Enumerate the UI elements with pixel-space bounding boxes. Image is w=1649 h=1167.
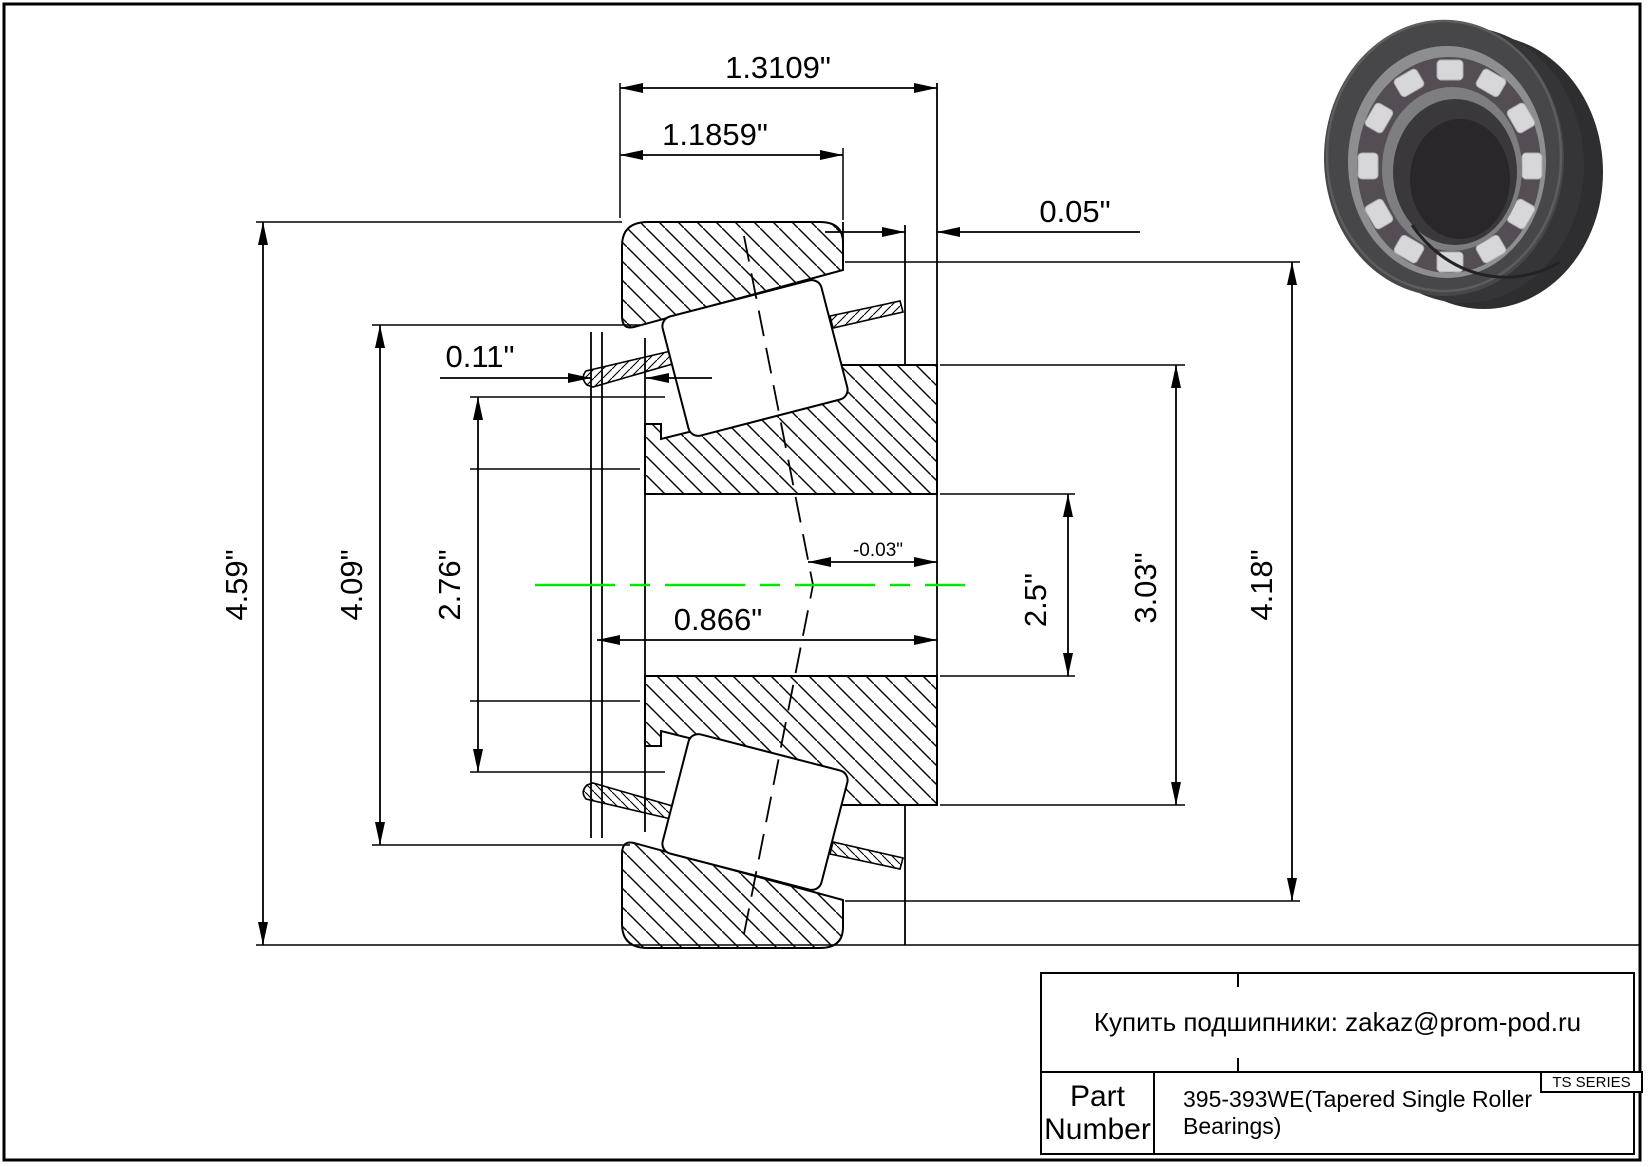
- dim-axial-offset: -0.03": [853, 540, 903, 561]
- dim-back-standout: 0.05": [1039, 194, 1110, 229]
- dim-cup-diameter: 4.18": [1244, 549, 1279, 620]
- part-number-label: Part Number: [1042, 1073, 1155, 1153]
- cage-front-bottom: [583, 783, 676, 819]
- part-label-line2: Number: [1044, 1113, 1151, 1146]
- dim-cup-width: 1.1859": [662, 117, 768, 152]
- bearing-3d-render: [1324, 20, 1603, 309]
- bearing-roller-3d: [1522, 153, 1542, 179]
- dim-bore-diameter: 2.5": [1018, 573, 1053, 627]
- title-block-tick-top: [1237, 974, 1239, 987]
- contact-line: Купить подшипники: zakaz@prom-pod.ru: [1042, 974, 1633, 1071]
- cross-section-top-half: [583, 222, 937, 585]
- bearing-roller-3d: [1358, 153, 1378, 179]
- title-block-tick-bottom: [1237, 1058, 1239, 1071]
- dim-front-standout: 0.11": [445, 339, 514, 374]
- part-label-line1: Part: [1070, 1080, 1125, 1113]
- dim-rib-diameter: 2.76": [432, 549, 467, 620]
- cage-back-top: [830, 301, 903, 328]
- dim-flange-diameter: 4.09": [334, 549, 369, 620]
- dim-cone-width: 0.866": [674, 602, 763, 637]
- series-badge: TS SERIES: [1540, 1071, 1643, 1093]
- dim-overall-width: 1.3109": [725, 50, 831, 85]
- dim-cone-back-diameter: 3.03": [1128, 552, 1163, 623]
- title-block: Купить подшипники: zakaz@prom-pod.ru Par…: [1040, 972, 1635, 1155]
- cage-front-top: [583, 351, 676, 387]
- dim-outer-diameter: 4.59": [219, 549, 254, 620]
- bearing-roller-3d: [1437, 60, 1463, 80]
- drawing-page: 1.3109" 1.1859" 0.05" 0.11" 0.866" -0.03…: [0, 0, 1649, 1167]
- cage-back-bottom: [830, 842, 903, 869]
